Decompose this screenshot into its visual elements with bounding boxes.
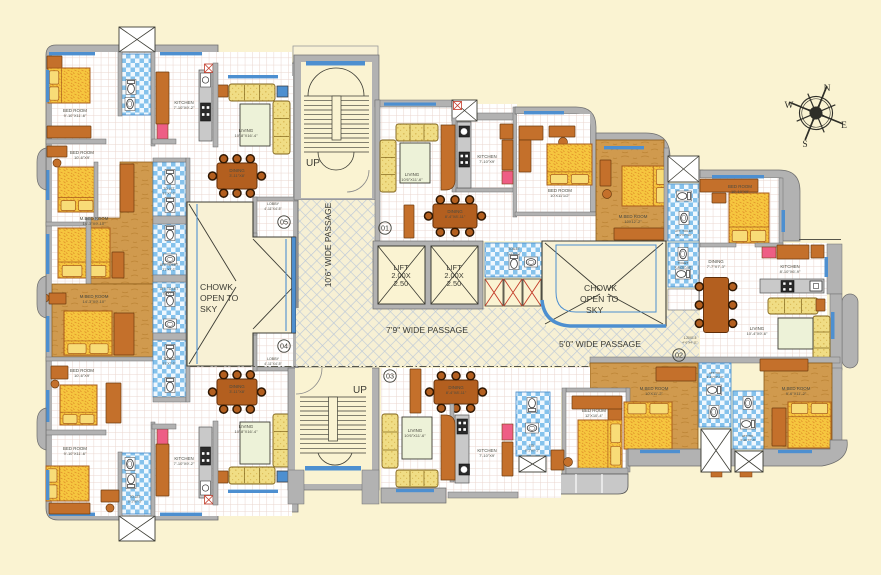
svg-text:3'-11"X7'-10": 3'-11"X7'-10" bbox=[674, 265, 691, 269]
svg-text:TOILET: TOILET bbox=[508, 247, 520, 251]
svg-text:OPEN TO: OPEN TO bbox=[580, 294, 619, 304]
svg-text:3'1"X7'-3": 3'1"X7'-3" bbox=[163, 361, 176, 365]
svg-text:SKY: SKY bbox=[586, 305, 603, 315]
svg-text:TO.LET: TO.LET bbox=[129, 495, 140, 499]
svg-text:4'-0"X4'-11": 4'-0"X4'-11" bbox=[682, 341, 697, 345]
svg-text:S: S bbox=[802, 140, 807, 150]
svg-text:3'-1"X7'-10": 3'-1"X7'-10" bbox=[676, 233, 692, 237]
svg-text:OPEN TO: OPEN TO bbox=[200, 293, 239, 303]
svg-text:14'-3"X9'-10": 14'-3"X9'-10" bbox=[82, 299, 106, 304]
svg-text:CHOWK: CHOWK bbox=[200, 282, 233, 292]
svg-text:9'-10"X11'-6": 9'-10"X11'-6" bbox=[64, 451, 87, 456]
svg-text:10'-10"X9': 10'-10"X9' bbox=[731, 189, 749, 194]
svg-text:10'6"X11'-6": 10'6"X11'-6" bbox=[404, 433, 426, 438]
svg-text:5'-1"X7'-1": 5'-1"X7'-1" bbox=[525, 448, 539, 452]
svg-text:10X12'-2": 10X12'-2" bbox=[624, 219, 642, 224]
svg-text:5'0" WIDE PASSAGE: 5'0" WIDE PASSAGE bbox=[559, 339, 641, 349]
svg-text:01: 01 bbox=[381, 224, 389, 233]
svg-text:4'-11"X4'-5": 4'-11"X4'-5" bbox=[264, 207, 282, 211]
svg-text:SKY: SKY bbox=[200, 304, 217, 314]
svg-text:7'-10"X9': 7'-10"X9' bbox=[479, 159, 495, 164]
svg-text:W: W bbox=[785, 101, 794, 111]
svg-text:3'1"X7'-3": 3'1"X7'-3" bbox=[163, 191, 176, 195]
svg-text:10'-6"X9': 10'-6"X9' bbox=[74, 373, 90, 378]
svg-text:UP: UP bbox=[353, 385, 367, 396]
svg-text:02: 02 bbox=[675, 351, 683, 360]
svg-text:TOI.: TOI. bbox=[529, 444, 535, 448]
svg-text:5'-1"X7'-3": 5'-1"X7'-3" bbox=[128, 499, 142, 503]
svg-text:7'-1"X3'-1": 7'-1"X3'-1" bbox=[507, 252, 521, 256]
svg-text:10'-4"X9'-6": 10'-4"X9'-6" bbox=[747, 331, 768, 336]
svg-text:8'-10"X6'-9": 8'-10"X6'-9" bbox=[780, 269, 801, 274]
svg-text:7'-10"X9'-2": 7'-10"X9'-2" bbox=[174, 105, 195, 110]
svg-text:10'X11'-2": 10'X11'-2" bbox=[645, 391, 663, 396]
svg-text:UP: UP bbox=[306, 158, 320, 169]
svg-text:9'-10"X11'-6": 9'-10"X11'-6" bbox=[64, 113, 87, 118]
svg-text:TO.LET: TO.LET bbox=[163, 357, 174, 361]
svg-text:1.20X1.5: 1.20X1.5 bbox=[684, 336, 697, 340]
svg-text:7'9" WIDE PASSAGE: 7'9" WIDE PASSAGE bbox=[386, 325, 468, 335]
svg-text:3'1"X7'-3": 3'1"X7'-3" bbox=[163, 267, 176, 271]
svg-text:E: E bbox=[841, 121, 847, 131]
svg-text:3'1"X7'-3": 3'1"X7'-3" bbox=[163, 291, 176, 295]
svg-text:3'-11"X8': 3'-11"X8' bbox=[229, 173, 245, 178]
svg-text:7'-10"X9': 7'-10"X9' bbox=[479, 453, 495, 458]
svg-text:3'-11"X8': 3'-11"X8' bbox=[229, 389, 245, 394]
svg-text:7'-10"X9'-2": 7'-10"X9'-2" bbox=[174, 461, 195, 466]
svg-text:05: 05 bbox=[280, 218, 288, 227]
svg-text:10'-8"X16'-4": 10'-8"X16'-4" bbox=[234, 133, 258, 138]
svg-text:10'6" WIDE PASSAGE: 10'6" WIDE PASSAGE bbox=[323, 202, 333, 287]
svg-text:10'-6"X9': 10'-6"X9' bbox=[74, 155, 90, 160]
svg-text:03: 03 bbox=[386, 372, 394, 381]
svg-text:7'-7"X7'-3": 7'-7"X7'-3" bbox=[707, 264, 726, 269]
svg-text:ATT. TO.LET: ATT. TO.LET bbox=[160, 263, 178, 267]
svg-text:10'-8"X16'-4": 10'-8"X16'-4" bbox=[234, 429, 258, 434]
svg-text:3'-11"X7'-10": 3'-11"X7'-10" bbox=[706, 375, 723, 379]
svg-text:4'-11"X4'-5": 4'-11"X4'-5" bbox=[264, 362, 282, 366]
svg-text:2.50: 2.50 bbox=[447, 279, 461, 288]
svg-text:3'-11"X7'-6": 3'-11"X7'-6" bbox=[740, 438, 755, 442]
svg-text:04: 04 bbox=[280, 342, 288, 351]
svg-text:12'X10'-4": 12'X10'-4" bbox=[585, 413, 604, 418]
svg-text:LOBBY: LOBBY bbox=[267, 357, 280, 361]
svg-text:10'6"X11'-6": 10'6"X11'-6" bbox=[401, 177, 423, 182]
svg-text:9'-6"X11'-2": 9'-6"X11'-2" bbox=[786, 391, 807, 396]
svg-text:2.50: 2.50 bbox=[394, 279, 408, 288]
svg-text:10'X11'1/2": 10'X11'1/2" bbox=[550, 193, 570, 198]
svg-text:TO.LET: TO.LET bbox=[163, 187, 174, 191]
svg-text:8'-4"X8'-11": 8'-4"X8'-11" bbox=[446, 390, 467, 395]
svg-text:N: N bbox=[824, 84, 831, 94]
svg-text:LOBBY: LOBBY bbox=[267, 202, 280, 206]
svg-text:14'-3"X9'-10": 14'-3"X9'-10" bbox=[82, 221, 106, 226]
svg-text:8'-4"X8'-11": 8'-4"X8'-11" bbox=[445, 214, 466, 219]
svg-text:ATT. TO.LET: ATT. TO.LET bbox=[160, 287, 178, 291]
svg-text:CHOWK: CHOWK bbox=[584, 283, 617, 293]
